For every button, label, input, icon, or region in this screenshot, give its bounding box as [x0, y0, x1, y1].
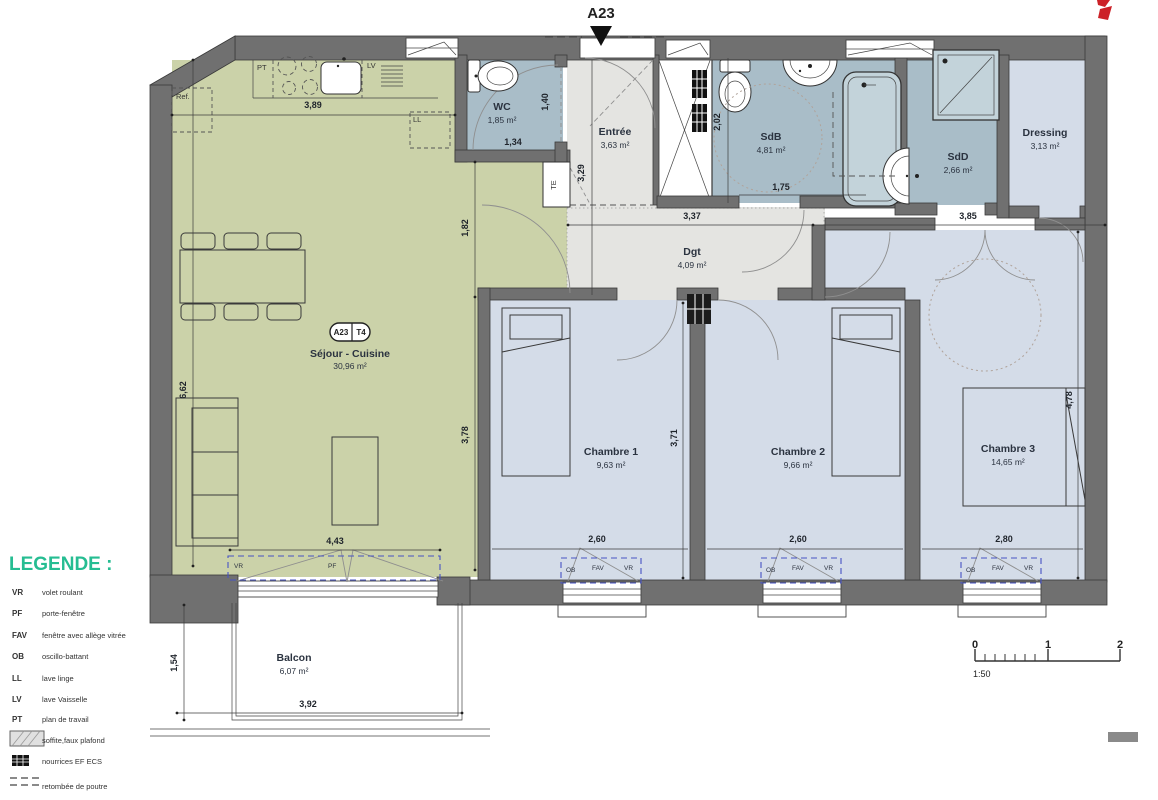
ch2-area: 9,66 m² [784, 460, 813, 470]
balcon-name: Balcon [276, 652, 311, 664]
dgt-area: 4,09 m² [678, 260, 707, 270]
ch3-ob-label: OB [966, 567, 975, 574]
legend-label-nourrices: nourrices EF ECS [42, 757, 102, 766]
ch3-area: 14,65 m² [991, 457, 1025, 467]
sdd-area: 2,66 m² [944, 165, 973, 175]
sdb-window [846, 40, 934, 58]
legend-label-ll: lave linge [42, 674, 74, 683]
legend-soffite-swatch [10, 731, 44, 746]
legend: LEGENDE : VR volet roulant PF porte-fenê… [9, 554, 126, 791]
sink-icon [321, 57, 361, 94]
entrance-tag-text: A23 [587, 5, 615, 22]
dim-balcon-h: 1,54 [169, 654, 179, 672]
unit-badge: A23 T4 [330, 323, 370, 341]
te-cupboard: TE [543, 162, 570, 207]
dim-ch1-w: 2,60 [588, 534, 606, 544]
north-arrow-icon [1097, 0, 1112, 20]
dressing-area: 3,13 m² [1031, 141, 1060, 151]
dim-sejour-w: 4,43 [326, 536, 344, 546]
legend-label-pf: porte-fenêtre [42, 609, 85, 618]
legend-abbr-lv: LV [12, 695, 22, 704]
ch3-name: Chambre 3 [981, 443, 1035, 455]
ll-label: LL [413, 115, 421, 124]
floor-plan-drawing: VR PF OB FAV VR OB FAV VR OB FAV VR [0, 0, 1158, 800]
legend-nourrices-swatch [12, 755, 29, 766]
sdb-area: 4,81 m² [757, 145, 786, 155]
badge-type: T4 [356, 328, 366, 337]
dim-nook: 1,82 [460, 219, 470, 237]
legend-abbr-pt: PT [12, 715, 22, 724]
dim-right: 3,85 [959, 211, 977, 221]
legend-abbr-vr: VR [12, 588, 23, 597]
entree-window [666, 40, 710, 58]
entree-name: Entrée [599, 126, 632, 138]
ch2-fav-label: FAV [792, 565, 804, 572]
scale-bar: 0 1 2 1:50 [972, 639, 1138, 742]
entree-area: 3,63 m² [601, 140, 630, 150]
dim-entree: 3,29 [576, 164, 586, 182]
balcon-area: 6,07 m² [280, 666, 309, 676]
adjacent-wall-fragment [1108, 732, 1138, 742]
floor-plan-page: VR PF OB FAV VR OB FAV VR OB FAV VR [0, 0, 1158, 800]
kitchen-window [406, 38, 458, 58]
dim-sdb-w: 1,75 [772, 182, 790, 192]
ch2-vr-label: VR [824, 565, 833, 572]
dim-sejour-h: 6,62 [178, 381, 188, 399]
legend-abbr-ob: OB [12, 652, 24, 661]
sdd-name: SdD [948, 151, 969, 163]
dgt-name: Dgt [683, 246, 701, 258]
sejour-name: Séjour - Cuisine [310, 348, 390, 360]
dim-ch2-w: 2,60 [789, 534, 807, 544]
legend-label-ob: oscillo-battant [42, 652, 89, 661]
legend-label-vr: volet roulant [42, 588, 84, 597]
dim-ch3-h: 4,78 [1064, 391, 1074, 409]
shower-icon [933, 50, 999, 120]
dim-dgt: 3,37 [683, 211, 701, 221]
legend-label-soffite: soffite,faux plafond [42, 736, 105, 745]
dim-kitchen: 3,89 [304, 100, 322, 110]
legend-label-fav: fenêtre avec allège vitrée [42, 631, 126, 640]
legend-abbr-pf: PF [12, 609, 22, 618]
legend-title: LEGENDE : [9, 554, 112, 575]
dim-ch-h: 3,71 [669, 429, 679, 447]
legend-label-poutre: retombée de poutre [42, 782, 107, 791]
dim-ch3-w: 2,80 [995, 534, 1013, 544]
nourrice-block [687, 294, 711, 324]
dim-sejour-s: 3,78 [460, 426, 470, 444]
ch1-fav-label: FAV [592, 565, 604, 572]
sejour-area: 30,96 m² [333, 361, 367, 371]
sejour-pf-label: PF [328, 563, 336, 570]
wc-name: WC [493, 101, 511, 113]
wc-toilet-icon [468, 60, 518, 92]
ref-label: Ref. [176, 92, 190, 101]
pt-label: PT [257, 63, 267, 72]
technical-shaft [657, 55, 712, 205]
dim-sdb-h: 2,02 [712, 113, 722, 131]
ch2-name: Chambre 2 [771, 446, 825, 458]
legend-abbr-fav: FAV [12, 631, 28, 640]
ch3-fav-label: FAV [992, 565, 1004, 572]
ch1-name: Chambre 1 [584, 446, 638, 458]
te-label: TE [549, 180, 558, 190]
wc-area: 1,85 m² [488, 115, 517, 125]
ch1-vr-label: VR [624, 565, 633, 572]
scale-ratio: 1:50 [973, 669, 991, 679]
dim-balcon-w: 3,92 [299, 699, 317, 709]
dim-wc-h: 1,40 [540, 93, 550, 111]
ch3-vr-label: VR [1024, 565, 1033, 572]
ch2-ob-label: OB [766, 567, 775, 574]
ch1-ob-label: OB [566, 567, 575, 574]
legend-poutre-swatch [10, 778, 42, 785]
lv-label: LV [367, 61, 376, 70]
ch1-area: 9,63 m² [597, 460, 626, 470]
legend-label-lv: lave Vaisselle [42, 695, 87, 704]
sejour-vr-label: VR [234, 563, 243, 570]
sdb-name: SdB [761, 131, 782, 143]
badge-unit: A23 [334, 328, 349, 337]
legend-abbr-ll: LL [12, 674, 22, 683]
sdb-toilet-icon [719, 60, 751, 112]
dressing-name: Dressing [1023, 127, 1068, 139]
dim-wc-w: 1,34 [504, 137, 522, 147]
legend-label-pt: plan de travail [42, 715, 89, 724]
